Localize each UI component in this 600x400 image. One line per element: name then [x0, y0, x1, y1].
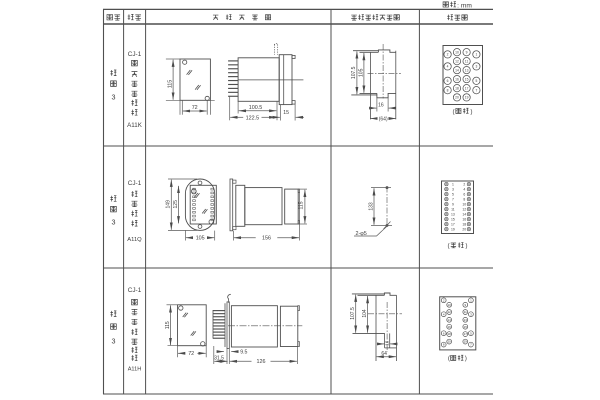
- svg-text:14: 14: [462, 212, 466, 216]
- svg-text:5: 5: [452, 192, 454, 196]
- svg-text:5: 5: [470, 331, 472, 335]
- svg-text:3: 3: [112, 337, 116, 346]
- svg-text:2: 2: [443, 298, 445, 302]
- svg-text:17: 17: [465, 86, 469, 90]
- svg-text:CJ-1: CJ-1: [128, 51, 142, 58]
- svg-text:19: 19: [465, 96, 469, 100]
- svg-text:A11H: A11H: [128, 367, 142, 373]
- svg-text:6: 6: [443, 331, 445, 335]
- svg-text:A11Q: A11Q: [127, 237, 142, 243]
- svg-text:20: 20: [448, 340, 452, 344]
- svg-text:CJ-1: CJ-1: [128, 287, 142, 294]
- svg-text:1: 1: [470, 298, 472, 302]
- svg-text:4: 4: [463, 187, 465, 191]
- svg-text:3: 3: [452, 187, 454, 191]
- svg-text:4: 4: [443, 312, 445, 316]
- svg-text:13: 13: [465, 68, 469, 72]
- svg-text:125: 125: [173, 200, 179, 209]
- svg-text:72: 72: [188, 351, 194, 357]
- svg-text:10: 10: [448, 303, 452, 307]
- svg-text:): ): [465, 355, 467, 362]
- svg-text:16: 16: [455, 77, 459, 81]
- svg-text:8: 8: [447, 88, 449, 92]
- svg-text:CJ-1: CJ-1: [128, 180, 142, 187]
- svg-text:): ): [465, 243, 467, 250]
- svg-text:3: 3: [470, 312, 472, 316]
- svg-text:5: 5: [475, 79, 477, 83]
- svg-text:3: 3: [112, 92, 116, 101]
- svg-text:20: 20: [455, 96, 459, 100]
- svg-text:10: 10: [455, 50, 459, 54]
- svg-text:105: 105: [358, 68, 364, 77]
- svg-text:149: 149: [166, 200, 172, 209]
- svg-text:115: 115: [165, 321, 171, 329]
- svg-text:15: 15: [464, 325, 468, 329]
- svg-text:107.5: 107.5: [351, 66, 357, 79]
- svg-text:104: 104: [362, 309, 368, 318]
- svg-text:: mm: : mm: [457, 2, 472, 9]
- svg-text:2-φ5: 2-φ5: [356, 231, 367, 237]
- svg-text:14: 14: [455, 68, 459, 72]
- svg-text:7: 7: [475, 88, 477, 92]
- svg-text:107.5: 107.5: [350, 307, 356, 320]
- svg-text:9.5: 9.5: [240, 350, 247, 356]
- svg-text:18: 18: [455, 86, 459, 90]
- svg-text:16: 16: [385, 340, 390, 346]
- svg-text:13: 13: [464, 318, 468, 322]
- svg-text:4: 4: [447, 65, 449, 69]
- svg-text:16: 16: [378, 102, 384, 108]
- svg-text:19: 19: [464, 340, 468, 344]
- svg-text:31.5: 31.5: [214, 355, 224, 361]
- svg-text:8: 8: [443, 343, 445, 347]
- svg-text:18: 18: [448, 332, 452, 336]
- svg-text:18: 18: [462, 222, 466, 226]
- svg-text:1: 1: [452, 182, 454, 186]
- svg-text:19: 19: [451, 227, 455, 231]
- svg-text:(: (: [448, 243, 451, 250]
- svg-text:11: 11: [464, 310, 467, 314]
- svg-text:100.5: 100.5: [249, 105, 263, 111]
- svg-text:9: 9: [464, 303, 466, 307]
- svg-text:3: 3: [112, 217, 116, 226]
- svg-text:7: 7: [452, 197, 454, 201]
- svg-text:16: 16: [462, 217, 466, 221]
- svg-text:15: 15: [465, 77, 469, 81]
- svg-text:72: 72: [192, 105, 198, 111]
- svg-text:126: 126: [257, 359, 266, 365]
- svg-text:7: 7: [470, 343, 472, 347]
- svg-text:133: 133: [368, 202, 374, 211]
- svg-text:156: 156: [262, 236, 271, 242]
- svg-text:(: (: [453, 108, 456, 115]
- svg-text:17: 17: [451, 222, 455, 226]
- svg-text:3: 3: [475, 65, 477, 69]
- svg-text:2: 2: [447, 53, 449, 57]
- svg-text:2: 2: [463, 182, 465, 186]
- svg-text:10: 10: [462, 202, 466, 206]
- svg-text:9: 9: [452, 202, 454, 206]
- svg-text:6: 6: [463, 192, 465, 196]
- svg-text:14: 14: [448, 318, 452, 322]
- svg-text:11: 11: [451, 207, 455, 211]
- svg-text:105: 105: [196, 236, 205, 242]
- svg-text:15: 15: [451, 217, 455, 221]
- svg-text:8: 8: [463, 197, 465, 201]
- svg-text:122.5: 122.5: [246, 115, 260, 121]
- svg-text:6: 6: [447, 79, 449, 83]
- svg-text:64: 64: [381, 351, 387, 357]
- svg-text:15: 15: [283, 110, 289, 116]
- svg-text:17: 17: [464, 332, 468, 336]
- svg-text:12: 12: [462, 207, 466, 211]
- svg-text:13: 13: [451, 212, 455, 216]
- svg-text:A11K: A11K: [127, 122, 143, 129]
- svg-text:1: 1: [475, 53, 477, 57]
- svg-text:16: 16: [448, 325, 452, 329]
- svg-text:9: 9: [466, 50, 468, 54]
- svg-text:12: 12: [448, 310, 452, 314]
- svg-text:115: 115: [167, 80, 173, 89]
- svg-text:): ): [470, 108, 472, 115]
- svg-text:20: 20: [462, 227, 466, 231]
- svg-text:11: 11: [465, 59, 469, 63]
- svg-text:12: 12: [455, 59, 459, 63]
- svg-text:(64): (64): [379, 116, 388, 122]
